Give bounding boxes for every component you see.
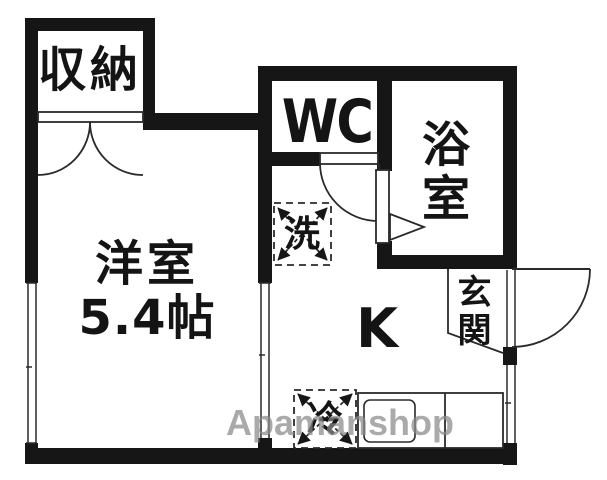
wall-closet-top: [25, 18, 155, 31]
closet-door-track: [38, 112, 143, 122]
bath-door-opening: [376, 170, 389, 243]
closet-label: 収納: [29, 46, 151, 94]
watermark-text: Apamanshop: [226, 402, 454, 444]
wall-right-doorjamb: [503, 347, 517, 365]
wall-notch: [143, 113, 272, 130]
western-room-size: 5.4帖: [40, 294, 254, 342]
wall-wc-bath-upper: [377, 81, 392, 171]
wall-bottom: [25, 448, 517, 464]
wall-right-upper: [503, 66, 517, 269]
washer-label: 洗: [283, 217, 321, 253]
wall-divider: [258, 66, 272, 283]
window-right: [505, 365, 515, 443]
closet-door-arc-right: [90, 122, 143, 175]
kitchen-label: K: [352, 302, 402, 356]
floorplan-image: 収納 洋室 5.4帖 WC 浴室 K 玄関 洗 冷 Apamanshop: [0, 0, 607, 480]
front-door-arc: [512, 269, 590, 347]
wc-door-arc: [320, 163, 378, 221]
wc-label: WC: [276, 92, 378, 152]
entrance-label: 玄関: [454, 272, 488, 352]
wall-bath-bottom: [377, 255, 517, 269]
closet-door-arc-left: [38, 122, 90, 175]
western-room-label: 洋室: [47, 240, 247, 288]
wall-top: [258, 66, 517, 81]
bath-label: 浴室: [417, 113, 465, 233]
window-left: [26, 283, 37, 443]
